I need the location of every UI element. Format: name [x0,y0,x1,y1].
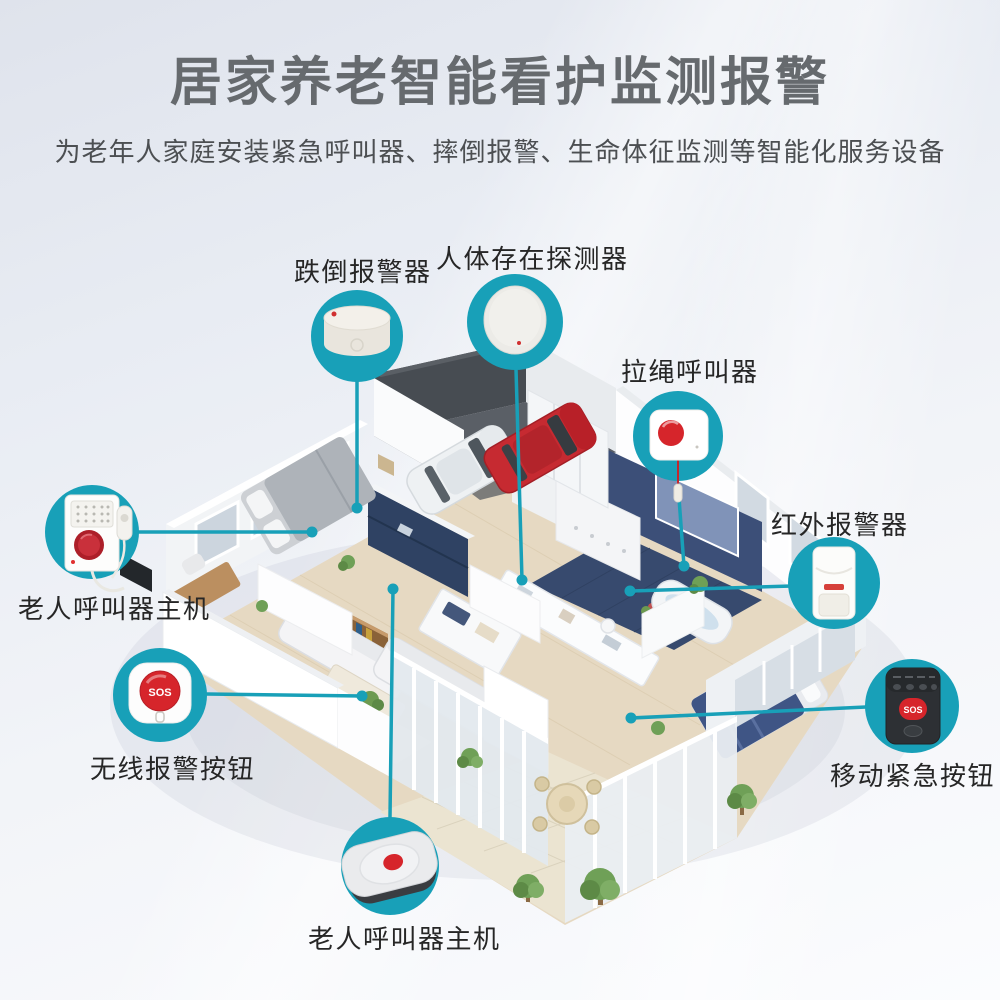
callout-label-mobile-sos: 移动紧急按钮 [830,756,995,793]
callout-infrared-alarm [788,537,880,629]
callout-label-elder-caller-host-bottom: 老人呼叫器主机 [308,919,501,956]
callout-fall-alarm [311,290,403,382]
callout-label-wireless-sos: 无线报警按钮 [90,749,255,786]
callout-presence-detector [467,274,563,370]
callout-mobile-sos: SOS [865,659,959,753]
floorplan-illustration: SOS SOS [0,0,1000,1000]
mobile-sos-text: SOS [903,705,922,715]
callout-label-fall-alarm: 跌倒报警器 [294,252,432,289]
callout-wireless-sos: SOS [113,648,207,742]
callout-label-elder-caller-host-left: 老人呼叫器主机 [18,589,211,626]
page: 居家养老智能看护监测报警 为老年人家庭安装紧急呼叫器、摔倒报警、生命体征监测等智… [0,0,1000,1000]
callout-label-pull-cord-caller: 拉绳呼叫器 [621,352,759,389]
callout-label-presence-detector: 人体存在探测器 [436,239,629,276]
wireless-sos-text: SOS [148,687,171,699]
callout-label-infrared-alarm: 红外报警器 [771,505,909,542]
